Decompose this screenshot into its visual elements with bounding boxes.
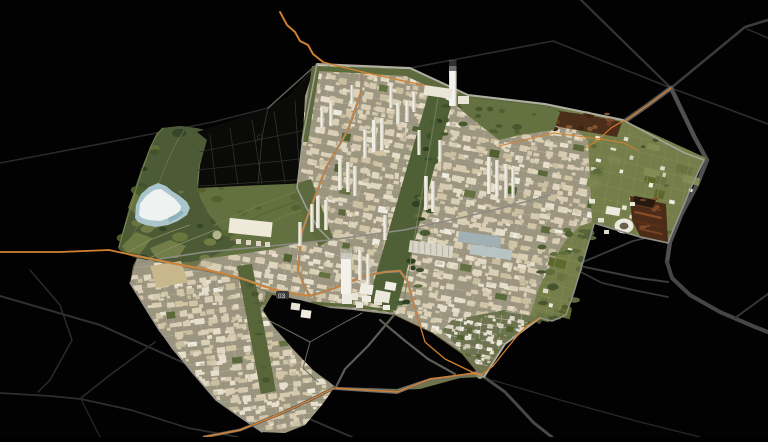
svg-text:03: 03 (278, 293, 286, 300)
